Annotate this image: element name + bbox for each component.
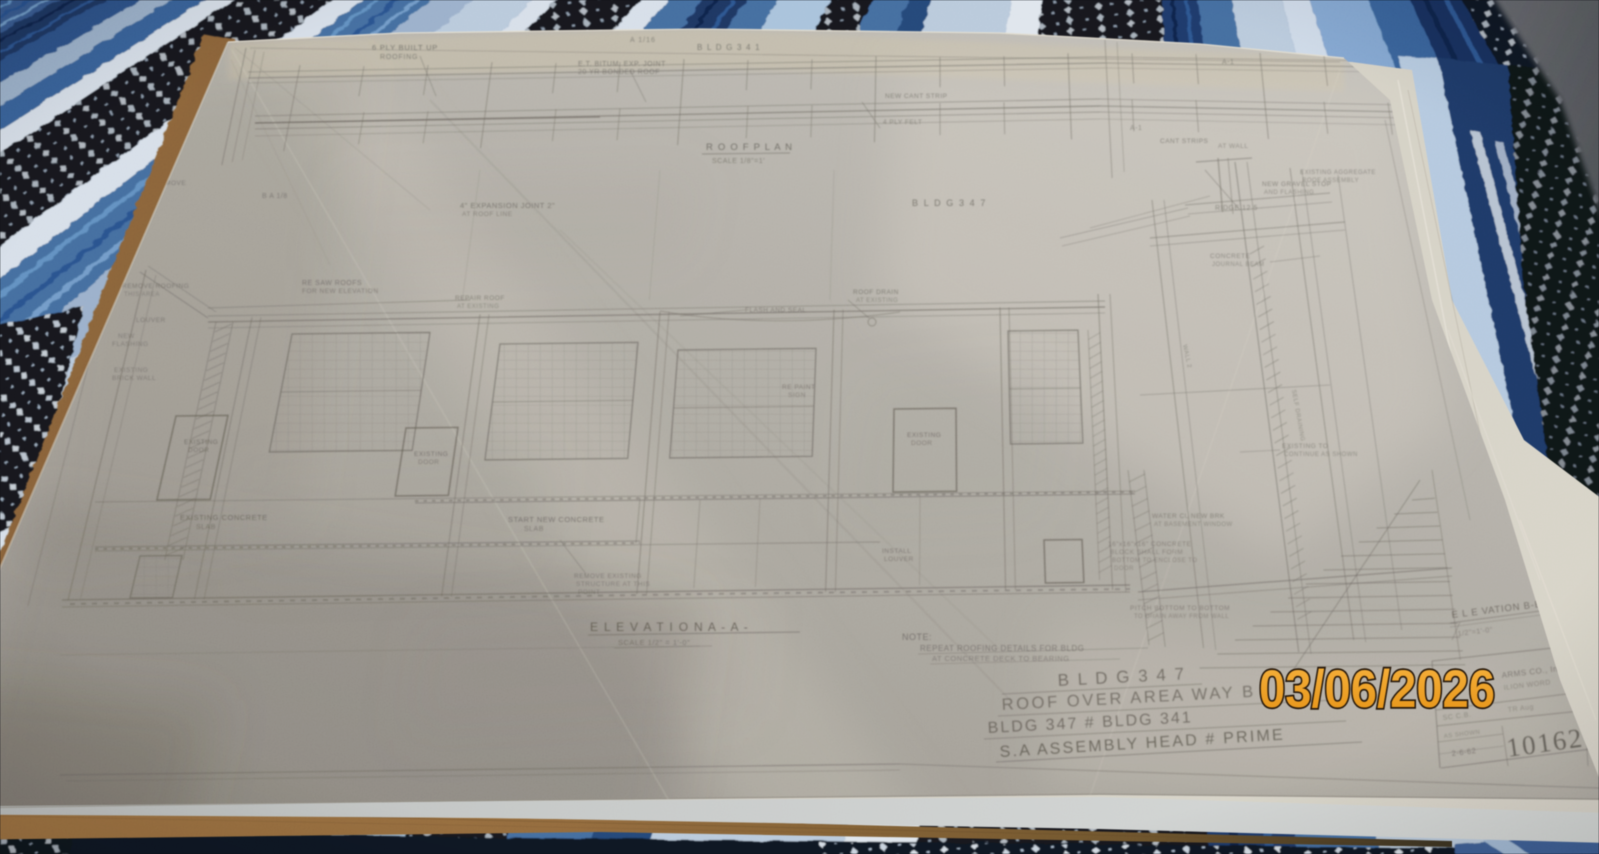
svg-text:03/06/2026: 03/06/2026 (1259, 659, 1495, 718)
